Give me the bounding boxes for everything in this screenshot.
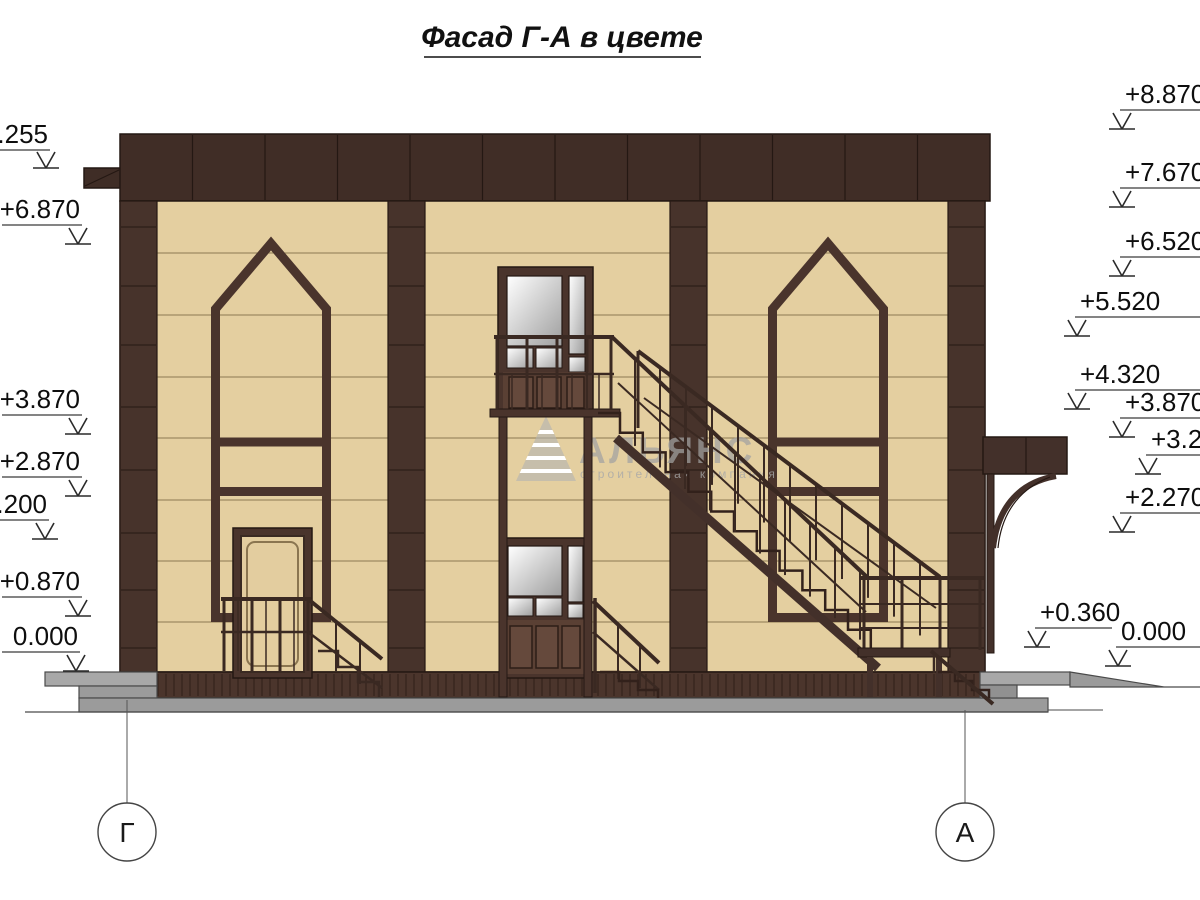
elevation-mark-arrow xyxy=(78,418,87,434)
elevation-mark-arrow xyxy=(1113,113,1122,129)
elevation-mark-arrow xyxy=(36,523,45,539)
canopy-bracket xyxy=(993,476,1056,548)
elevation-mark-value: +5.520 xyxy=(1080,286,1160,316)
elevation-mark-value: +4.320 xyxy=(1080,359,1160,389)
elevation-mark: +0.870 xyxy=(0,566,91,616)
elevation-mark-value: +3.870 xyxy=(1125,387,1200,417)
elevation-mark-value: +0.870 xyxy=(0,566,80,596)
lower-door-panel-1 xyxy=(510,626,532,668)
elevation-mark-arrow xyxy=(1037,631,1046,647)
lower-door-glass-side-sub xyxy=(568,604,583,618)
elevation-mark: +3.870 xyxy=(0,384,91,434)
lower-door-panel-3 xyxy=(562,626,580,668)
elevation-mark-arrow xyxy=(46,152,55,168)
lower-door-glass-sub-2 xyxy=(536,598,562,616)
elevation-mark-value: +7.670 xyxy=(1125,157,1200,187)
elevation-mark-arrow xyxy=(78,228,87,244)
elevation-mark-value: +3.870 xyxy=(0,384,80,414)
elevation-mark-value: +6.520 xyxy=(1125,226,1200,256)
left-entrance-door xyxy=(233,528,312,678)
elevation-mark-arrow xyxy=(1068,393,1077,409)
elevation-mark-arrow xyxy=(1118,650,1127,666)
pilaster-mid-left xyxy=(388,201,425,672)
lower-door-glass-sub-1 xyxy=(508,598,533,616)
elevation-mark-value: +3.270 xyxy=(1151,424,1200,454)
canopy-roof xyxy=(983,437,1067,474)
elevation-mark-value: 0.000 xyxy=(13,621,78,651)
left-platform-step xyxy=(79,686,157,698)
landing-leg xyxy=(867,657,873,697)
elevation-mark-value: +0.360 xyxy=(1040,597,1120,627)
elevation-mark-arrow xyxy=(45,523,54,539)
elevation-mark: +6.870 xyxy=(0,194,91,244)
elevation-mark-arrow xyxy=(1113,260,1122,276)
elevation-mark-value: +6.870 xyxy=(0,194,80,224)
elevation-mark-arrow xyxy=(69,600,78,616)
elevation-mark-arrow xyxy=(1028,631,1037,647)
elevation-mark-arrow xyxy=(1122,516,1131,532)
elevation-mark-arrow xyxy=(1122,113,1131,129)
upper-door-panel-3 xyxy=(567,377,584,408)
elevation-mark-arrow xyxy=(69,418,78,434)
elevation-mark-arrow xyxy=(1113,421,1122,437)
left-platform-slab xyxy=(45,672,157,686)
upper-door-glass-sub-1 xyxy=(507,348,533,368)
elevation-mark-arrow xyxy=(69,228,78,244)
right-platform-slab xyxy=(980,672,1070,685)
elevation-mark-value: +2.270 xyxy=(1125,482,1200,512)
axis-label-left: Г xyxy=(119,817,134,848)
elevation-mark: +7.670 xyxy=(1109,157,1200,207)
elevation-mark: +2.200 xyxy=(0,489,58,539)
axis-markers: Г А xyxy=(98,700,994,861)
balcony-support-post-left xyxy=(499,417,507,697)
elevation-mark-arrow xyxy=(78,600,87,616)
upper-door-glass-side xyxy=(569,276,585,354)
elevation-mark-value: 0.000 xyxy=(1121,616,1186,646)
elevation-mark-arrow xyxy=(69,480,78,496)
elevation-mark: +6.520 xyxy=(1109,226,1200,276)
right-ramp xyxy=(1070,672,1164,687)
elevation-mark: +5.520 xyxy=(1064,286,1200,336)
title-block: Фасад Г-А в цвете xyxy=(421,21,703,57)
lower-door-glass-main xyxy=(508,546,562,596)
elevation-mark: 0.000 xyxy=(2,621,89,671)
balcony-support-post-right xyxy=(584,417,592,697)
elevation-mark-arrow xyxy=(1122,191,1131,207)
lower-door-glass-side xyxy=(568,546,583,602)
elevation-mark-arrow xyxy=(1148,458,1157,474)
lower-center-door xyxy=(500,538,590,678)
pilaster-corner-left xyxy=(120,201,157,672)
elevation-mark-arrow xyxy=(76,655,85,671)
elevation-mark: +8.870 xyxy=(1109,79,1200,129)
facade-drawing-page: АЛЬЯНС строительная компания xyxy=(0,0,1200,900)
elevation-mark-arrow xyxy=(1109,650,1118,666)
elevation-mark-arrow xyxy=(1122,421,1131,437)
elevation-mark-arrow xyxy=(1077,393,1086,409)
elevation-mark: +8.255 xyxy=(0,119,59,168)
canopy-post xyxy=(987,474,994,653)
elevation-mark-arrow xyxy=(78,480,87,496)
elevation-mark-value: +8.255 xyxy=(0,119,48,149)
elevation-mark: +3.270 xyxy=(1135,424,1200,474)
elevation-mark-arrow xyxy=(1122,260,1131,276)
elevation-mark-arrow xyxy=(1139,458,1148,474)
elevation-mark-value: +2.870 xyxy=(0,446,80,476)
elevation-mark-arrow xyxy=(37,152,46,168)
elevation-mark-arrow xyxy=(1068,320,1077,336)
facade-drawing: АЛЬЯНС строительная компания xyxy=(0,0,1200,900)
elevation-mark-arrow xyxy=(1113,516,1122,532)
elevation-mark-value: +2.200 xyxy=(0,489,47,519)
elevation-mark-arrow xyxy=(1077,320,1086,336)
page-title: Фасад Г-А в цвете xyxy=(421,21,703,54)
watermark-name: АЛЬЯНС xyxy=(579,430,755,471)
axis-label-right: А xyxy=(956,817,975,848)
upper-door-glass-side-sub xyxy=(569,357,585,372)
elevation-mark-arrow xyxy=(67,655,76,671)
landing-leg xyxy=(936,657,942,697)
elevation-mark-value: +8.870 xyxy=(1125,79,1200,109)
elevation-mark-arrow xyxy=(1113,191,1122,207)
elevation-mark: +2.270 xyxy=(1109,482,1200,532)
elevation-mark: +0.360 xyxy=(1024,597,1120,647)
lower-door-panel-2 xyxy=(536,626,558,668)
sidewalk xyxy=(79,698,1048,712)
